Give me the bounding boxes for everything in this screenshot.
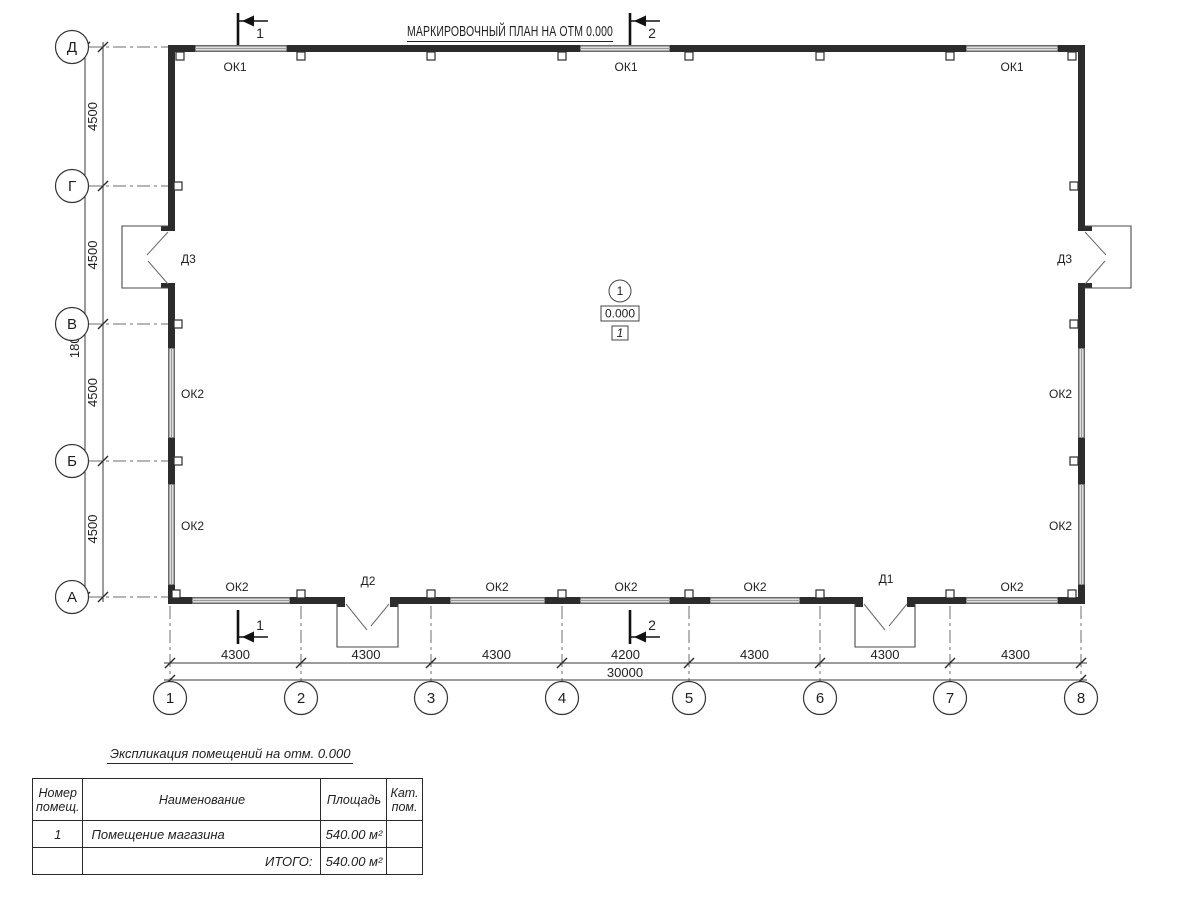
wall-segment [287, 45, 580, 52]
window-label: ОК1 [1001, 60, 1024, 74]
axis-bubble-label: 7 [946, 690, 954, 707]
axis-bubble-label: 6 [816, 690, 824, 707]
rooms-table-wrap: Номер помещ. Наименование Площадь Кат. п… [32, 778, 423, 875]
col-header-name: Наименование [83, 779, 321, 821]
door-jamb [1078, 226, 1092, 231]
wall-segment [1078, 585, 1085, 604]
dimension-label: 4300 [740, 647, 769, 662]
door-jamb [161, 226, 175, 231]
dimension-label: 4300 [871, 647, 900, 662]
axis-bubble-label: 4 [558, 690, 566, 707]
door-label: Д3 [181, 252, 196, 266]
axis-bubble-label: Д [67, 39, 77, 56]
rooms-table: Номер помещ. Наименование Площадь Кат. п… [32, 778, 423, 875]
door-leaf [148, 261, 168, 284]
door-leaf [1085, 261, 1105, 284]
cell-total-label: ИТОГО: [83, 848, 321, 875]
room-bubble-label: 1 [617, 284, 624, 298]
axis-bubble-label: 5 [685, 690, 693, 707]
column-marker [427, 52, 435, 60]
cell-room-category [387, 821, 422, 848]
dimension-label: 4500 [85, 102, 100, 131]
column-marker [297, 590, 305, 598]
column-marker [1068, 590, 1076, 598]
column-marker [558, 590, 566, 598]
door-vestibule [855, 604, 915, 647]
door-leaf [1085, 232, 1106, 255]
explication-title: Экспликация помещений на отм. 0.000 [107, 746, 353, 764]
door-vestibule [337, 604, 398, 647]
dimension-label: 4300 [221, 647, 250, 662]
column-marker [946, 52, 954, 60]
window-label: ОК2 [615, 580, 638, 594]
door-label: Д1 [879, 572, 894, 586]
wall-segment [908, 597, 966, 604]
window-label: ОК2 [181, 387, 204, 401]
window-label: ОК1 [615, 60, 638, 74]
column-marker [297, 52, 305, 60]
door-label: Д3 [1057, 252, 1072, 266]
cell-empty [387, 848, 422, 875]
axis-bubble-label: 8 [1077, 690, 1085, 707]
axis-bubble-label: Б [67, 453, 77, 470]
dimension-label: 4200 [611, 647, 640, 662]
table-total-row: ИТОГО: 540.00 м² [33, 848, 423, 875]
drawing-title: МАРКИРОВОЧНЫЙ ПЛАН НА ОТМ 0.000 [407, 22, 613, 40]
room-tag-label: 1 [617, 326, 624, 340]
window-label: ОК1 [224, 60, 247, 74]
column-marker [946, 590, 954, 598]
axis-bubble-label: 1 [166, 690, 174, 707]
section-mark-arrow-icon [242, 16, 254, 27]
column-marker [174, 182, 182, 190]
dimension-label: 4500 [85, 241, 100, 270]
column-marker [1070, 457, 1078, 465]
window-label: ОК2 [744, 580, 767, 594]
column-marker [685, 590, 693, 598]
wall-segment [168, 45, 175, 230]
door-vestibule [122, 226, 168, 288]
section-mark-arrow-icon [634, 632, 646, 643]
wall-segment [168, 287, 175, 348]
column-marker [816, 52, 824, 60]
wall-segment [670, 45, 966, 52]
wall-segment [1078, 438, 1085, 484]
axis-bubble-label: Г [68, 178, 76, 195]
dimension-label: 4500 [85, 378, 100, 407]
dimension-label: 4300 [1001, 647, 1030, 662]
column-marker [427, 590, 435, 598]
door-leaf [864, 604, 885, 630]
column-marker [1068, 52, 1076, 60]
section-mark-label: 2 [648, 25, 656, 41]
column-marker [558, 52, 566, 60]
section-mark-label: 1 [256, 25, 264, 41]
column-marker [816, 590, 824, 598]
col-header-area: Площадь [321, 779, 387, 821]
wall-segment [1078, 45, 1085, 230]
column-marker [174, 457, 182, 465]
column-marker [1070, 182, 1078, 190]
window-label: ОК2 [226, 580, 249, 594]
column-marker [174, 320, 182, 328]
column-marker [685, 52, 693, 60]
col-header-number: Номер помещ. [33, 779, 83, 821]
door-leaf [889, 604, 907, 626]
door-leaf [147, 232, 168, 255]
section-mark-label: 2 [648, 617, 656, 633]
window-label: ОК2 [181, 519, 204, 533]
cell-total-area: 540.00 м² [321, 848, 387, 875]
door-leaf [346, 604, 367, 630]
dimension-label: 4300 [482, 647, 511, 662]
dimension-label: 4500 [85, 515, 100, 544]
window-label: ОК2 [1049, 387, 1072, 401]
door-jamb [390, 597, 398, 607]
axis-bubble-label: 3 [427, 690, 435, 707]
cell-room-number: 1 [33, 821, 83, 848]
cell-room-area: 540.00 м² [321, 821, 387, 848]
wall-segment [800, 597, 863, 604]
floor-plan-canvas: 4300430043004200430043004300300004500450… [0, 0, 1200, 900]
axis-bubble-label: 2 [297, 690, 305, 707]
cell-empty [33, 848, 83, 875]
door-vestibule [1085, 226, 1131, 288]
column-marker [172, 590, 180, 598]
table-row: 1 Помещение магазина 540.00 м² [33, 821, 423, 848]
column-marker [1070, 320, 1078, 328]
door-label: Д2 [361, 574, 376, 588]
section-mark-arrow-icon [634, 16, 646, 27]
axis-bubble-label: В [67, 316, 77, 333]
window-label: ОК2 [1001, 580, 1024, 594]
door-jamb [855, 597, 863, 607]
section-mark-arrow-icon [242, 632, 254, 643]
door-jamb [907, 597, 915, 607]
door-leaf [371, 604, 389, 626]
window-label: ОК2 [1049, 519, 1072, 533]
elevation-label: 0.000 [605, 307, 635, 321]
dimension-label: 4300 [352, 647, 381, 662]
door-jamb [337, 597, 345, 607]
axis-bubble-label: А [67, 589, 77, 606]
wall-segment [1078, 287, 1085, 348]
dimension-label-total: 30000 [607, 665, 643, 680]
col-header-category: Кат. пом. [387, 779, 422, 821]
drawing-sheet: 4300430043004200430043004300300004500450… [0, 0, 1200, 900]
cell-room-name: Помещение магазина [83, 821, 321, 848]
column-marker [176, 52, 184, 60]
section-mark-label: 1 [256, 617, 264, 633]
window-label: ОК2 [486, 580, 509, 594]
wall-segment [390, 597, 450, 604]
